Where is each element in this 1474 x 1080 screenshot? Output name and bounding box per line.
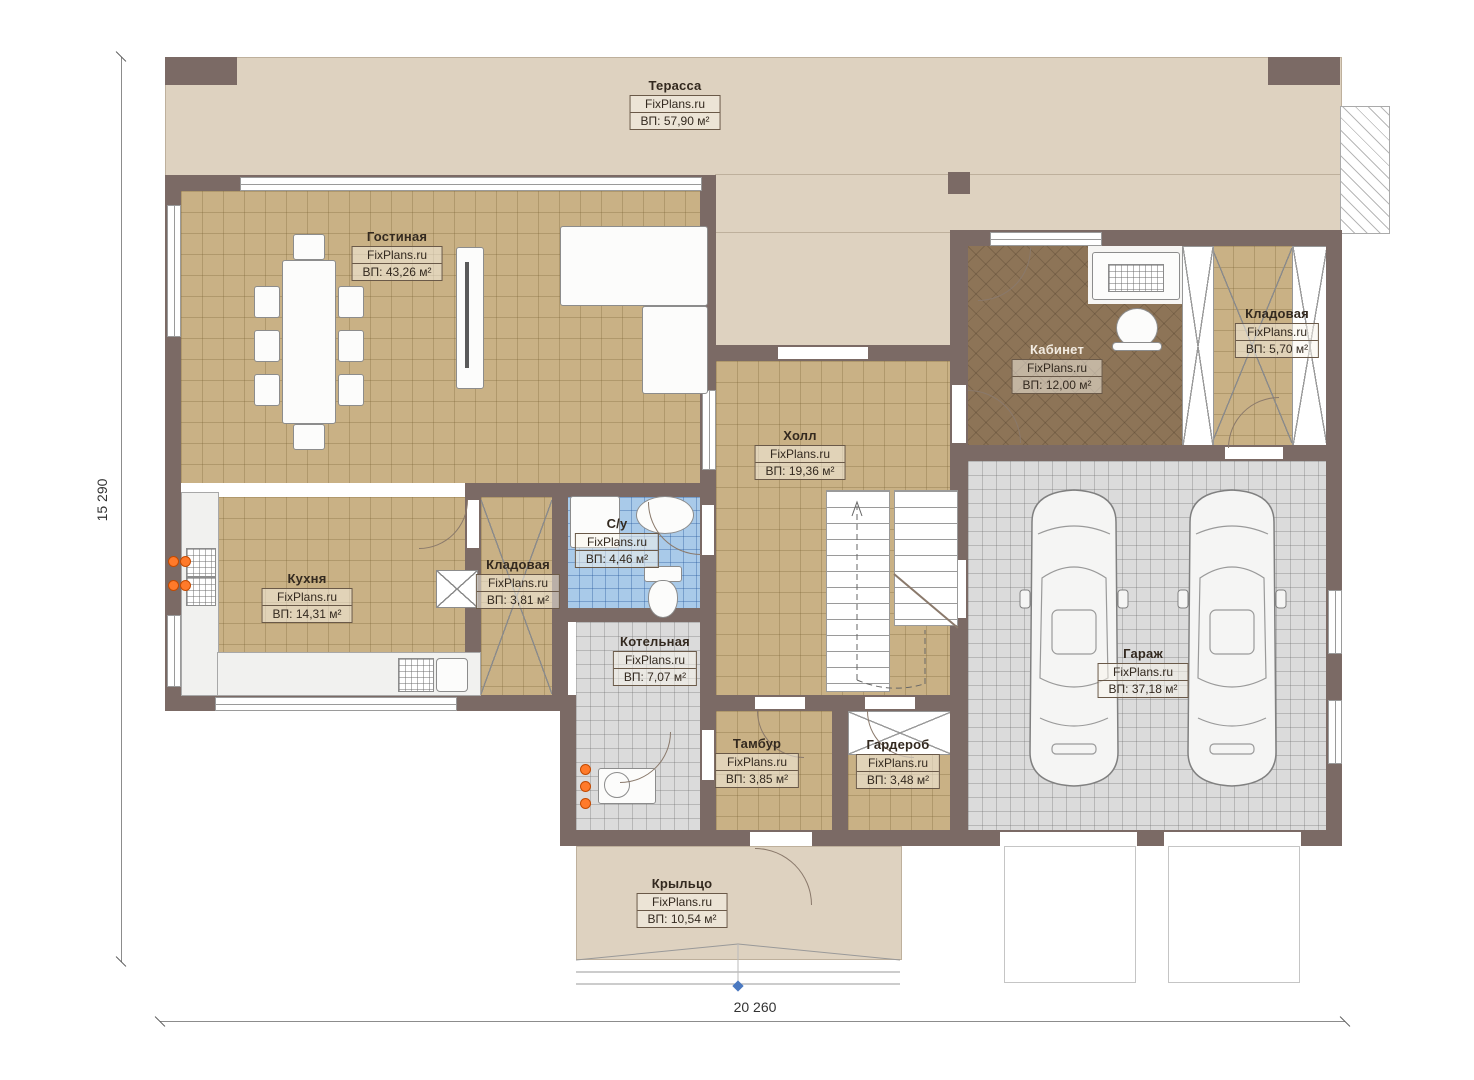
room-name: Крыльцо [637,876,728,891]
garage-apron [1004,846,1136,983]
toilet-bowl [648,580,678,618]
dimension-line-horizontal [160,1021,1345,1022]
storage-door-opening [1225,447,1283,459]
bathroom-door-opening [702,505,714,555]
burner-dot [180,556,191,567]
wardrobe-door-opening [865,697,915,709]
room-brand: FixPlans.ru [631,96,720,113]
room-area: ВП: 43,26 м² [353,264,442,280]
car [1018,482,1130,794]
room-label-office: Кабинет FixPlans.ru ВП: 12,00 м² [1012,342,1103,394]
porch-steps [576,938,900,996]
room-info-box: FixPlans.ru ВП: 4,46 м² [575,533,659,568]
room-brand: FixPlans.ru [756,446,845,463]
sofa-chaise [642,306,708,394]
room-name: Гараж [1098,646,1189,661]
stove-grille [186,577,216,606]
window [167,205,181,337]
window [240,177,702,191]
room-label-kitchen: Кухня FixPlans.ru ВП: 14,31 м² [262,571,353,623]
garage-gate-opening [1000,832,1137,846]
room-brand: FixPlans.ru [263,589,352,606]
cased-opening [702,390,716,470]
survey-marker [732,980,743,991]
room-info-box: FixPlans.ru ВП: 37,18 м² [1098,663,1189,698]
chair [254,374,280,406]
room-info-box: FixPlans.ru ВП: 12,00 м² [1012,359,1103,394]
room-info-box: FixPlans.ru ВП: 3,48 м² [856,754,940,789]
room-area: ВП: 37,18 м² [1099,681,1188,697]
keyboard [1108,264,1164,292]
room-area: ВП: 57,90 м² [631,113,720,129]
room-name: Тамбур [715,736,799,751]
room-area: ВП: 19,36 м² [756,463,845,479]
tv-screen [465,262,469,368]
wall [832,700,848,846]
burner-dot [168,556,179,567]
room-label-storage-right: Кладовая FixPlans.ru ВП: 5,70 м² [1235,306,1319,358]
room-brand: FixPlans.ru [716,754,798,771]
room-info-box: FixPlans.ru ВП: 14,31 м² [262,588,353,623]
room-brand: FixPlans.ru [1236,324,1318,341]
tv-unit [456,247,484,389]
garage-gate-opening [1164,832,1301,846]
room-brand: FixPlans.ru [638,894,727,911]
room-label-tambour: Тамбур FixPlans.ru ВП: 3,85 м² [715,736,799,788]
burner-dot [168,580,179,591]
terrace-ramp-hatch [1340,106,1390,234]
room-area: ВП: 10,54 м² [638,911,727,927]
dimension-label-width: 20 260 [700,999,810,1015]
room-area: ВП: 4,46 м² [576,551,658,567]
window [215,697,457,711]
terrace-floor [715,232,953,348]
room-name: Кабинет [1012,342,1103,357]
kitchen-sink-drainer [398,658,434,692]
room-area: ВП: 14,31 м² [263,606,352,622]
pantry-door-opening [467,500,479,548]
chair [254,286,280,318]
sofa [560,226,708,306]
room-label-living: Гостиная FixPlans.ru ВП: 43,26 м² [352,229,443,281]
room-name: Кладовая [1235,306,1319,321]
room-info-box: FixPlans.ru ВП: 3,81 м² [476,574,560,609]
room-brand: FixPlans.ru [857,755,939,772]
room-info-box: FixPlans.ru ВП: 10,54 м² [637,893,728,928]
room-label-bathroom: С/у FixPlans.ru ВП: 4,46 м² [575,516,659,568]
wall-pier [948,172,970,194]
room-label-boiler: Котельная FixPlans.ru ВП: 7,07 м² [613,634,697,686]
chair [338,286,364,318]
room-label-garage: Гараж FixPlans.ru ВП: 37,18 м² [1098,646,1189,698]
room-info-box: FixPlans.ru ВП: 5,70 м² [1235,323,1319,358]
entrance-door-opening [750,832,812,846]
room-brand: FixPlans.ru [1099,664,1188,681]
chair [254,330,280,362]
room-name: Котельная [613,634,697,649]
room-name: Терасса [630,78,721,93]
room-info-box: FixPlans.ru ВП: 43,26 м² [352,246,443,281]
room-name: Кладовая [476,557,560,572]
wall [465,483,716,497]
window [1328,590,1342,654]
room-label-hall: Холл FixPlans.ru ВП: 19,36 м² [755,428,846,480]
window [990,232,1102,246]
wall [165,57,237,85]
car [1176,482,1288,794]
garage-apron [1168,846,1300,983]
window [167,615,181,687]
floor-plan: Терасса FixPlans.ru ВП: 57,90 м² Гостина… [0,0,1474,1080]
dimension-label-height: 15 290 [94,460,110,540]
room-brand: FixPlans.ru [477,575,559,592]
wall [1268,57,1340,85]
dining-table [282,260,336,424]
room-area: ВП: 3,81 м² [477,592,559,608]
room-info-box: FixPlans.ru ВП: 3,85 м² [715,753,799,788]
office-door-opening [952,385,966,443]
chair [338,374,364,406]
room-info-box: FixPlans.ru ВП: 7,07 м² [613,651,697,686]
chair [293,234,325,260]
boiler-door-opening [702,730,714,780]
room-name: С/у [575,516,659,531]
room-label-porch: Крыльцо FixPlans.ru ВП: 10,54 м² [637,876,728,928]
room-label-wardrobe: Гардероб FixPlans.ru ВП: 3,48 м² [856,737,940,789]
room-name: Гардероб [856,737,940,752]
room-area: ВП: 3,48 м² [857,772,939,788]
terrace-door-opening [778,347,868,359]
wall [566,608,716,622]
room-brand: FixPlans.ru [1013,360,1102,377]
room-brand: FixPlans.ru [576,534,658,551]
room-info-box: FixPlans.ru ВП: 57,90 м² [630,95,721,130]
room-label-storage-mid: Кладовая FixPlans.ru ВП: 3,81 м² [476,557,560,609]
boiler-dot [580,798,591,809]
stairs-annotation [824,488,960,696]
burner-dot [180,580,191,591]
terrace-floor [715,174,1342,235]
wall [560,700,576,846]
boiler-dot [580,764,591,775]
terrace-floor [165,57,1342,177]
dimension-line-vertical [121,57,122,962]
office-chair-back [1112,342,1162,351]
room-brand: FixPlans.ru [353,247,442,264]
room-area: ВП: 5,70 м² [1236,341,1318,357]
window [1328,700,1342,764]
room-info-box: FixPlans.ru ВП: 19,36 м² [755,445,846,480]
room-area: ВП: 7,07 м² [614,669,696,685]
office-wardrobe-hatch [1182,246,1214,447]
room-label-terrace: Терасса FixPlans.ru ВП: 57,90 м² [630,78,721,130]
room-name: Кухня [262,571,353,586]
chair [293,424,325,450]
room-name: Гостиная [352,229,443,244]
kitchen-table [436,570,478,608]
boiler-dot [580,781,591,792]
room-name: Холл [755,428,846,443]
room-brand: FixPlans.ru [614,652,696,669]
kitchen-sink [436,658,468,692]
room-area: ВП: 12,00 м² [1013,377,1102,393]
room-area: ВП: 3,85 м² [716,771,798,787]
tambour-door-opening [755,697,805,709]
chair [338,330,364,362]
